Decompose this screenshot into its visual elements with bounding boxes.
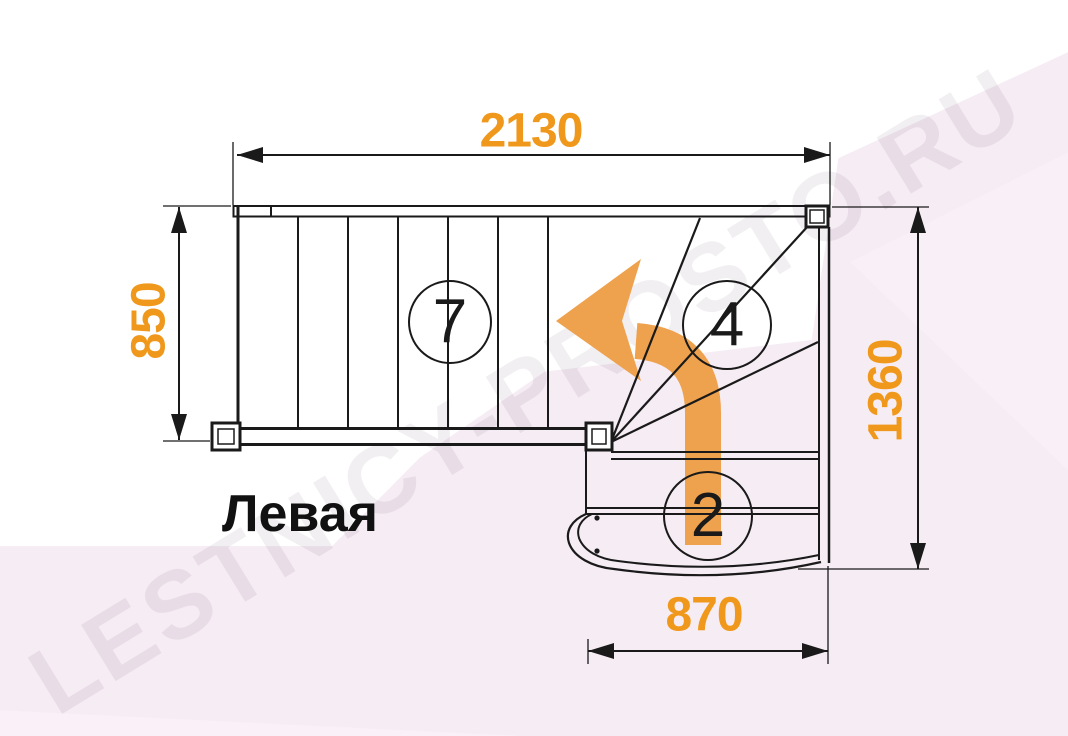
step-count-upper-flight: 7 [408, 280, 492, 364]
dimension-label-bottom: 870 [665, 588, 742, 643]
dimension-label-right: 1360 [859, 340, 914, 443]
dimension-label-top: 2130 [480, 104, 583, 159]
stair-plan-canvas: LESTNICY-PROSTO.RU [0, 0, 1068, 736]
plan-title: Левая [222, 484, 378, 544]
step-count-lower-flight: 2 [663, 471, 753, 561]
dimension-label-left: 850 [122, 282, 177, 359]
step-count-winder: 4 [682, 280, 772, 370]
